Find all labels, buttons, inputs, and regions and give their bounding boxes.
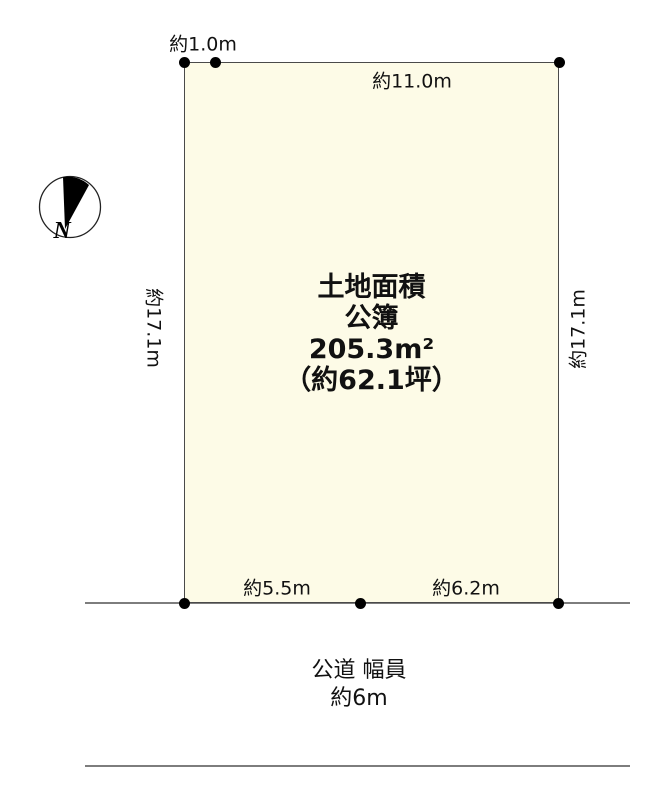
boundary-dot-top-right	[554, 57, 565, 68]
road-width-label: 約6m	[259, 685, 459, 713]
boundary-dot-top-left	[179, 57, 190, 68]
parcel-info: 土地面積 公簿 205.3m² （約62.1坪）	[184, 272, 559, 396]
compass: N	[37, 172, 103, 242]
road-name-label: 公道 幅員	[259, 657, 459, 685]
road-caption: 公道 幅員 約6m	[259, 657, 459, 713]
parcel-area-title: 土地面積	[184, 272, 559, 303]
boundary-dot-bottom-mid	[355, 598, 366, 609]
boundary-dot-bottom-left	[179, 598, 190, 609]
dimension-label-bottom-right: 約6.2m	[432, 580, 500, 599]
boundary-dot-top-offset	[210, 57, 221, 68]
compass-north-label: N	[52, 218, 72, 242]
dimension-label-right: 約17.1m	[570, 289, 589, 369]
dimension-label-top: 約11.0m	[372, 73, 452, 92]
dimension-label-top-left: 約1.0m	[169, 36, 237, 55]
boundary-dot-bottom-right	[553, 598, 564, 609]
land-plot-diagram: N 土地面積 公簿 205.3m² （約62.1坪） 約1.0m 約11.0m …	[0, 0, 658, 800]
parcel-register-type: 公簿	[184, 303, 559, 334]
dimension-label-left: 約17.1m	[144, 288, 163, 368]
dimension-label-bottom-left: 約5.5m	[243, 580, 311, 599]
road-edge-line-far	[85, 765, 630, 767]
parcel-area-sqm: 205.3m²	[184, 334, 559, 365]
parcel-area-tsubo: （約62.1坪）	[184, 365, 559, 396]
